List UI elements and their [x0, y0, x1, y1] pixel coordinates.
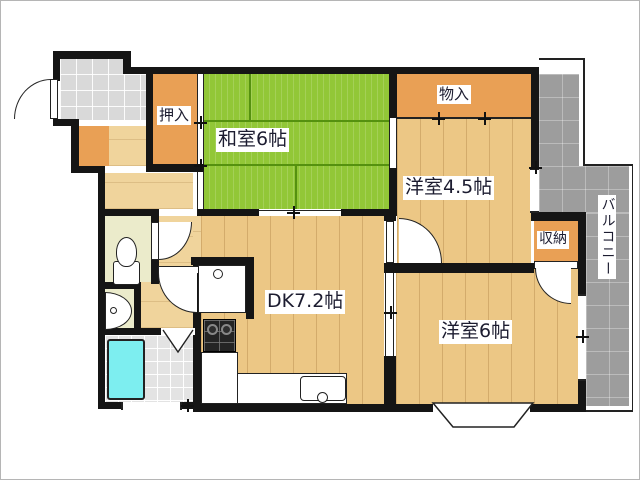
- label-shuunou: 収納: [537, 231, 569, 249]
- balcony-floor-upper: [539, 74, 579, 166]
- label-oshiire: 押入: [157, 106, 191, 125]
- label-youshitsu6: 洋室6帖: [439, 320, 512, 344]
- entry-step-floor: [79, 126, 109, 166]
- kitchen-counter-vertical: [201, 352, 238, 404]
- wall: [531, 67, 539, 168]
- stove-burner-icon: [221, 324, 232, 335]
- stove-icon: [203, 319, 236, 352]
- label-washitsu: 和室6帖: [216, 128, 289, 152]
- balcony-outline: [539, 58, 585, 60]
- dimension-tick: [529, 161, 542, 174]
- wall: [384, 209, 396, 221]
- bath-folding-door: [161, 328, 195, 355]
- wall: [578, 381, 586, 412]
- dimension-tick: [576, 330, 589, 343]
- dimension-tick: [194, 116, 207, 129]
- wall: [98, 209, 159, 216]
- toilet-bowl-icon: [116, 237, 137, 267]
- tatami-seam: [295, 164, 297, 209]
- wall: [384, 356, 396, 406]
- balcony-outline: [583, 58, 585, 166]
- bay-window: [427, 401, 539, 431]
- dk-passage-floor: [193, 216, 201, 258]
- wall: [246, 257, 254, 319]
- wall: [191, 257, 254, 265]
- entry-door-leaf: [50, 79, 58, 119]
- washitsu-youshitsu45-sliding-door: [389, 118, 397, 168]
- dimension-tick: [478, 112, 491, 125]
- dimension-tick: [384, 306, 397, 319]
- stove-burner-icon: [207, 324, 218, 335]
- entry-genkan-tile-floor: [60, 58, 124, 120]
- wall: [197, 209, 259, 216]
- washing-machine-faucet-icon: [213, 269, 223, 279]
- kitchen-sink-faucet-icon: [317, 392, 328, 403]
- tatami-seam: [197, 120, 389, 122]
- balcony-outline: [583, 164, 633, 166]
- hallway-floor-lower: [105, 173, 193, 209]
- dimension-tick: [194, 159, 207, 172]
- hallway-floor-upper: [109, 126, 146, 166]
- wall: [384, 263, 534, 273]
- label-dk: DK7.2帖: [265, 290, 345, 314]
- balcony-floor-middle: [539, 166, 629, 213]
- wall: [123, 67, 539, 74]
- dimension-tick: [287, 206, 300, 219]
- wall: [146, 67, 153, 167]
- label-monoire: 物入: [437, 85, 471, 104]
- washitsu-dk-sliding-door: [259, 210, 341, 215]
- dimension-tick: [432, 112, 445, 125]
- label-balcony: バルコニー: [598, 195, 616, 279]
- wall: [71, 119, 79, 173]
- dimension-tick: [181, 399, 194, 412]
- label-youshitsu45: 洋室4.5帖: [403, 176, 494, 200]
- bathtub-icon: [107, 339, 145, 400]
- wall: [53, 51, 131, 59]
- entry-door-swing-arc: [14, 79, 51, 119]
- washbasin-drain-icon: [110, 307, 117, 314]
- tatami-seam: [249, 74, 251, 120]
- wall: [53, 51, 60, 81]
- washitsu-hall-fusuma-door: [197, 172, 204, 209]
- youshitsu45-door-gap: [386, 221, 394, 263]
- floorplan-canvas: 押入 和室6帖 物入 洋室4.5帖 収納 DK7.2帖 洋室6帖 バルコニー: [0, 0, 640, 480]
- balcony-outline: [586, 410, 633, 412]
- wall: [193, 404, 433, 412]
- wall: [389, 168, 397, 214]
- youshitsu45-balcony-window: [530, 168, 539, 213]
- wall: [578, 212, 586, 294]
- toilet-door-leaf: [151, 222, 159, 260]
- monoire-sliding-door-line: [397, 117, 531, 119]
- entry-genkan-tile-floor-extension: [124, 74, 148, 120]
- wall: [389, 67, 397, 118]
- tatami-seam: [197, 164, 389, 166]
- balcony-outline: [632, 164, 634, 412]
- bathroom-window: [121, 402, 182, 410]
